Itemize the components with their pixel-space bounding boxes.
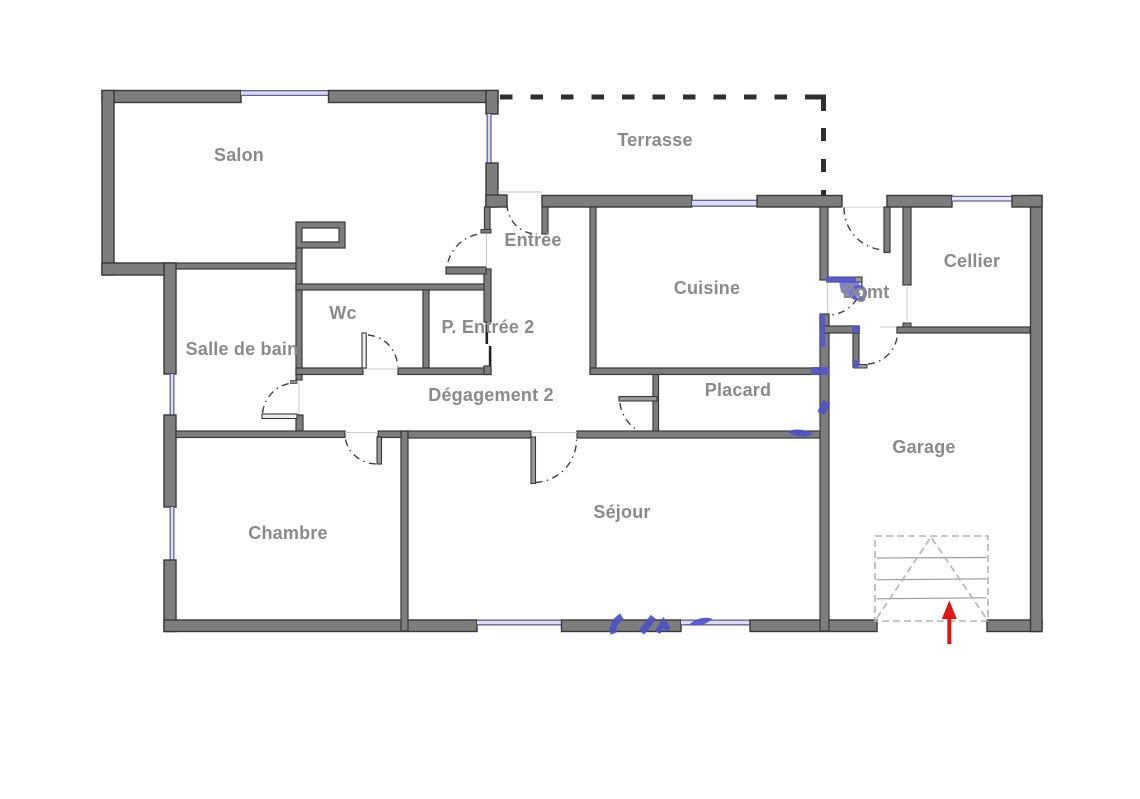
svg-text:Wc: Wc [329,303,356,323]
svg-text:Cellier: Cellier [944,251,1000,271]
svg-text:Terrasse: Terrasse [617,130,692,150]
svg-text:Salon: Salon [214,145,264,165]
svg-text:Dégagement 2: Dégagement 2 [428,385,553,405]
svg-text:Chambre: Chambre [248,523,327,543]
svg-text:Garage: Garage [892,437,955,457]
svg-text:Dgmt: Dgmt [843,282,890,302]
svg-text:Placard: Placard [705,380,771,400]
svg-text:Entrée: Entrée [504,230,561,250]
svg-text:Salle de bain: Salle de bain [186,339,299,359]
svg-text:Cuisine: Cuisine [674,278,740,298]
svg-text:Séjour: Séjour [593,502,650,522]
svg-text:P. Entrée 2: P. Entrée 2 [442,317,535,337]
